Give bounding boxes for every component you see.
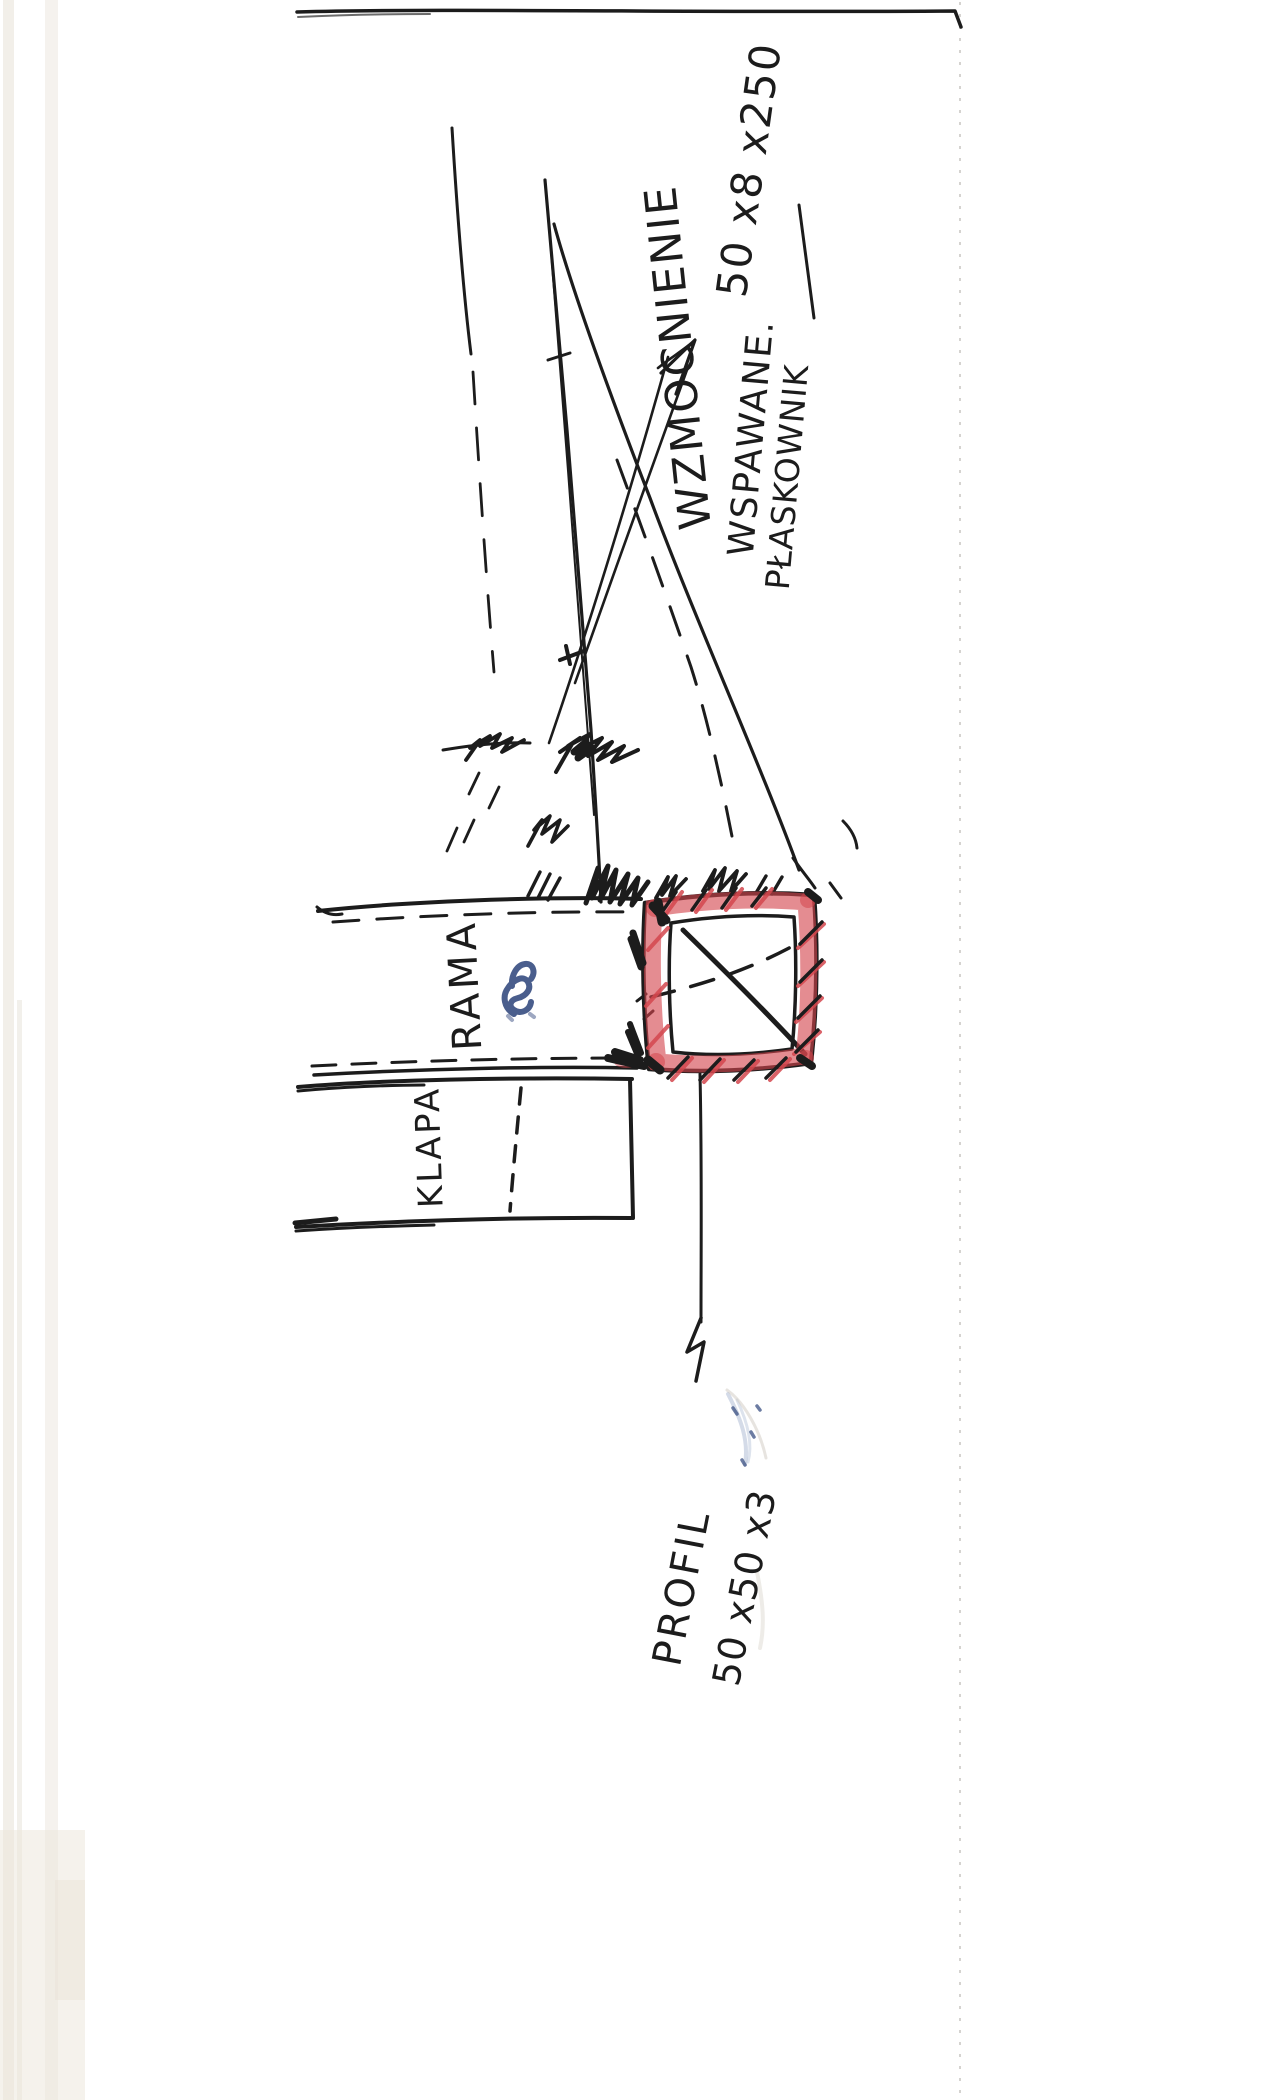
- scan-streak: [3, 0, 14, 2100]
- scan-streak: [45, 0, 58, 2100]
- profil-leader-line: [700, 1074, 701, 1322]
- label-klapa: KLAPA: [407, 1085, 451, 1208]
- label-rama: RAMA: [439, 918, 492, 1052]
- sketch-canvas: WZMOCNIENIE WSPAWANE. PŁASKOWNIK 50 x8 x…: [0, 0, 1275, 2100]
- scan-streak: [55, 1880, 85, 2000]
- scanned-sketch-page: WZMOCNIENIE WSPAWANE. PŁASKOWNIK 50 x8 x…: [0, 0, 1275, 2100]
